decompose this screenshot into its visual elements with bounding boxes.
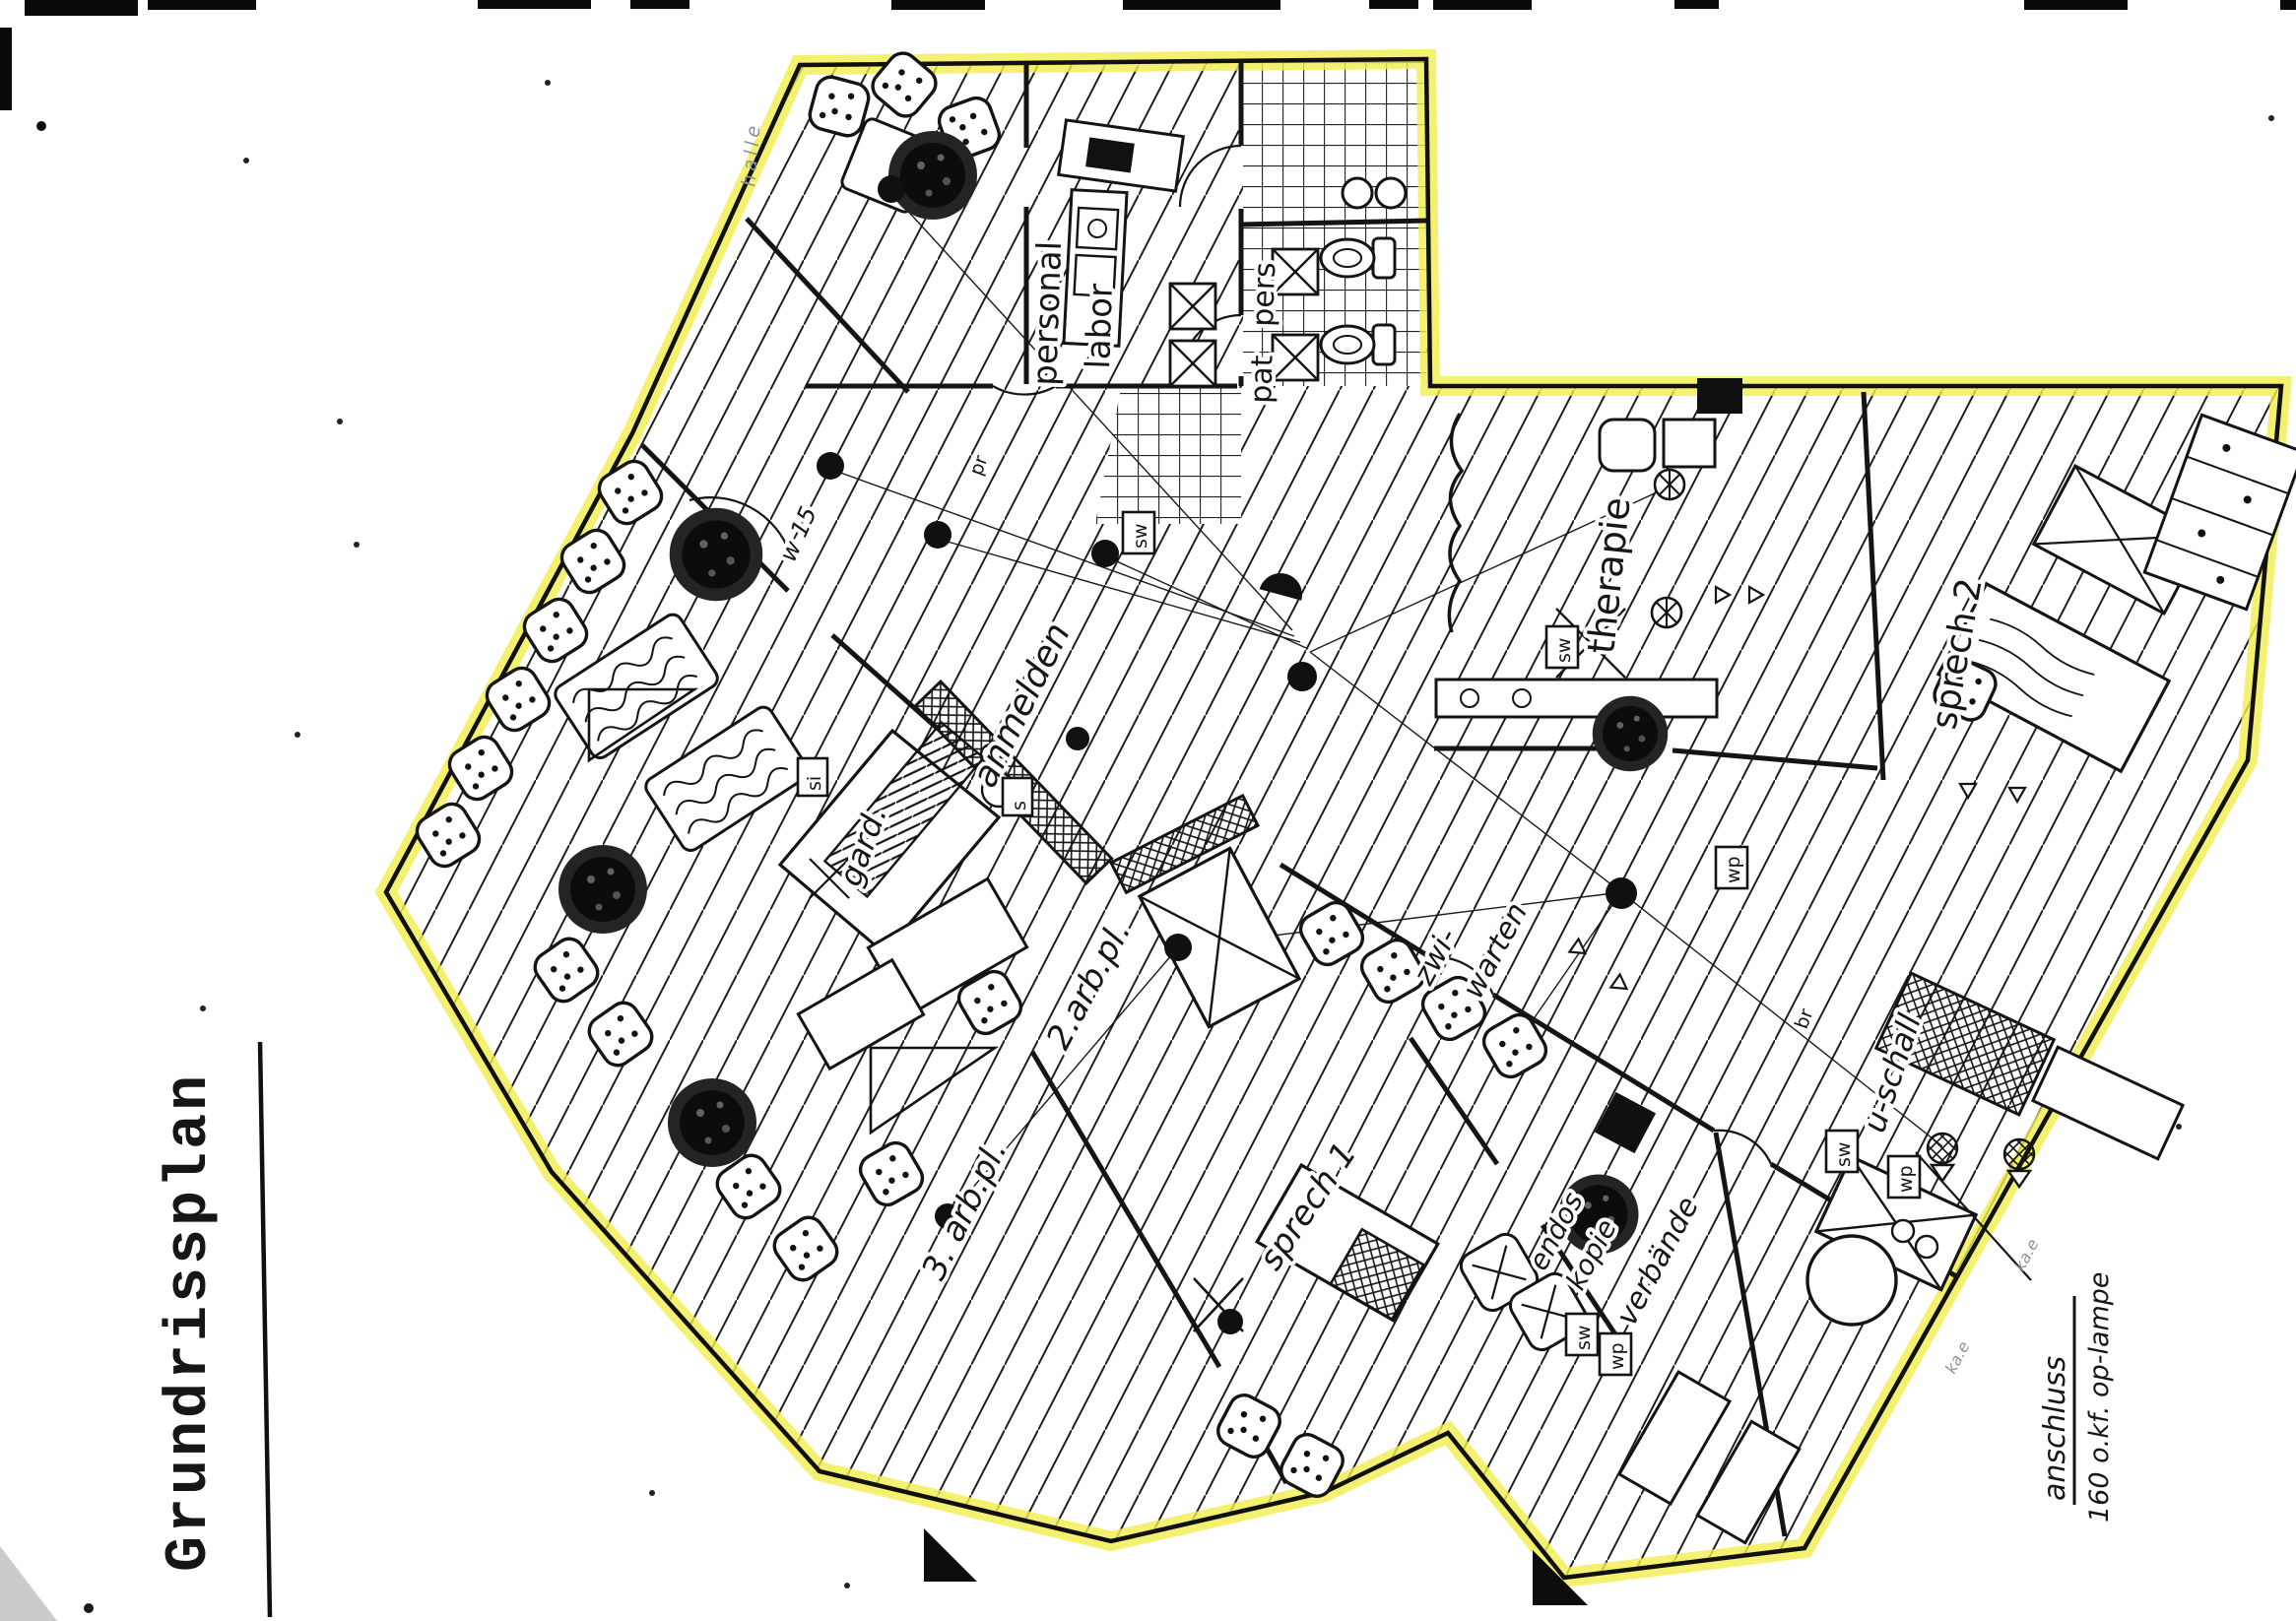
therapy-bench — [1436, 680, 1717, 717]
toilet — [1321, 325, 1395, 364]
sink — [1343, 178, 1372, 208]
equipment-label-wp: wp — [1723, 856, 1744, 883]
pencil-note-br1: ka.e — [2010, 1236, 2043, 1274]
op-lamp-circle — [1807, 1236, 1896, 1325]
room-label-personal: personal — [1025, 240, 1070, 386]
room-label-pat: pat — [1244, 355, 1280, 405]
equipment-label-sw: sw — [1553, 638, 1575, 663]
room-label-labor: labor — [1079, 283, 1121, 369]
equipment-label-wp: wp — [1607, 1342, 1628, 1370]
equipment-label-sw: sw — [1833, 1142, 1855, 1167]
ultrasound-cabinet — [2033, 1047, 2183, 1159]
door-block — [1697, 378, 1742, 414]
title-underline — [260, 1042, 270, 1617]
equipment-label-si: si — [804, 776, 825, 791]
equipment-label-sw: sw — [1573, 1326, 1595, 1350]
equipment-label-sw: sw — [1130, 524, 1151, 549]
callout-anschluss: anschluss — [2038, 1356, 2072, 1501]
room-label-pers: pers — [1246, 262, 1282, 328]
therapy-sink — [1600, 420, 1655, 471]
title-block: Grundrissplan — [157, 1042, 270, 1617]
callout-oplampe: 160 o.kf. op-lampe — [2084, 1271, 2115, 1523]
stool — [1892, 1220, 1914, 1242]
equipment-label-s: s — [1009, 801, 1030, 810]
scan-wedge — [924, 1528, 977, 1582]
equipment-label-wp: wp — [1895, 1165, 1917, 1193]
lobby-tiles — [1095, 388, 1241, 524]
lab-sink — [1170, 341, 1215, 386]
stool — [1916, 1236, 1937, 1258]
therapy-cabinet — [1664, 420, 1715, 467]
page-title: Grundrissplan — [157, 1072, 224, 1572]
toilet — [1321, 238, 1395, 278]
sink — [1376, 178, 1406, 208]
pencil-note-br2: ka.e — [1941, 1338, 1974, 1377]
scanned-floorplan-page: Grundrissplan — [0, 0, 2296, 1621]
lab-sink — [1170, 284, 1215, 329]
